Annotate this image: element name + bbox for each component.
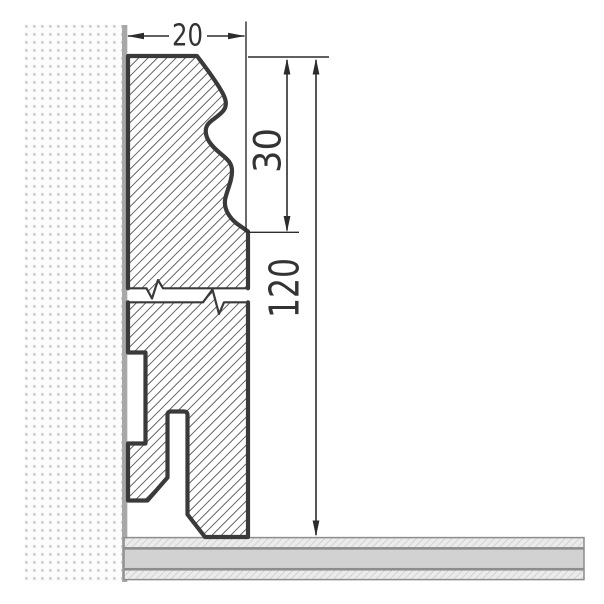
floor [124,538,584,580]
dimension-total-height-label: 120 [261,258,309,318]
dim-30-arrow-down-icon [284,216,291,232]
dim-120-arrow-down-icon [313,521,320,537]
wall-dotted-texture [25,25,122,582]
floor-core-layer [124,549,584,569]
dim-30-arrow-up-icon [284,59,291,75]
skirting-profile-drawing: 20 30 120 [0,0,604,604]
floor-bottom-layer [124,570,584,580]
dim-120-arrow-up-icon [313,59,320,75]
dim-20-arrow-left-icon [127,33,144,40]
dimension-total-height-120 [313,59,320,537]
wall [25,25,127,582]
dimension-top-profile-label: 30 [247,128,290,173]
technical-drawing-canvas: 20 30 120 [0,0,604,604]
floor-top-layer [124,538,584,548]
dim-20-arrow-right-icon [228,33,245,40]
skirting-profile-lower [128,290,248,538]
skirting-profile-upper [128,56,248,299]
dimension-width-label: 20 [172,19,203,54]
